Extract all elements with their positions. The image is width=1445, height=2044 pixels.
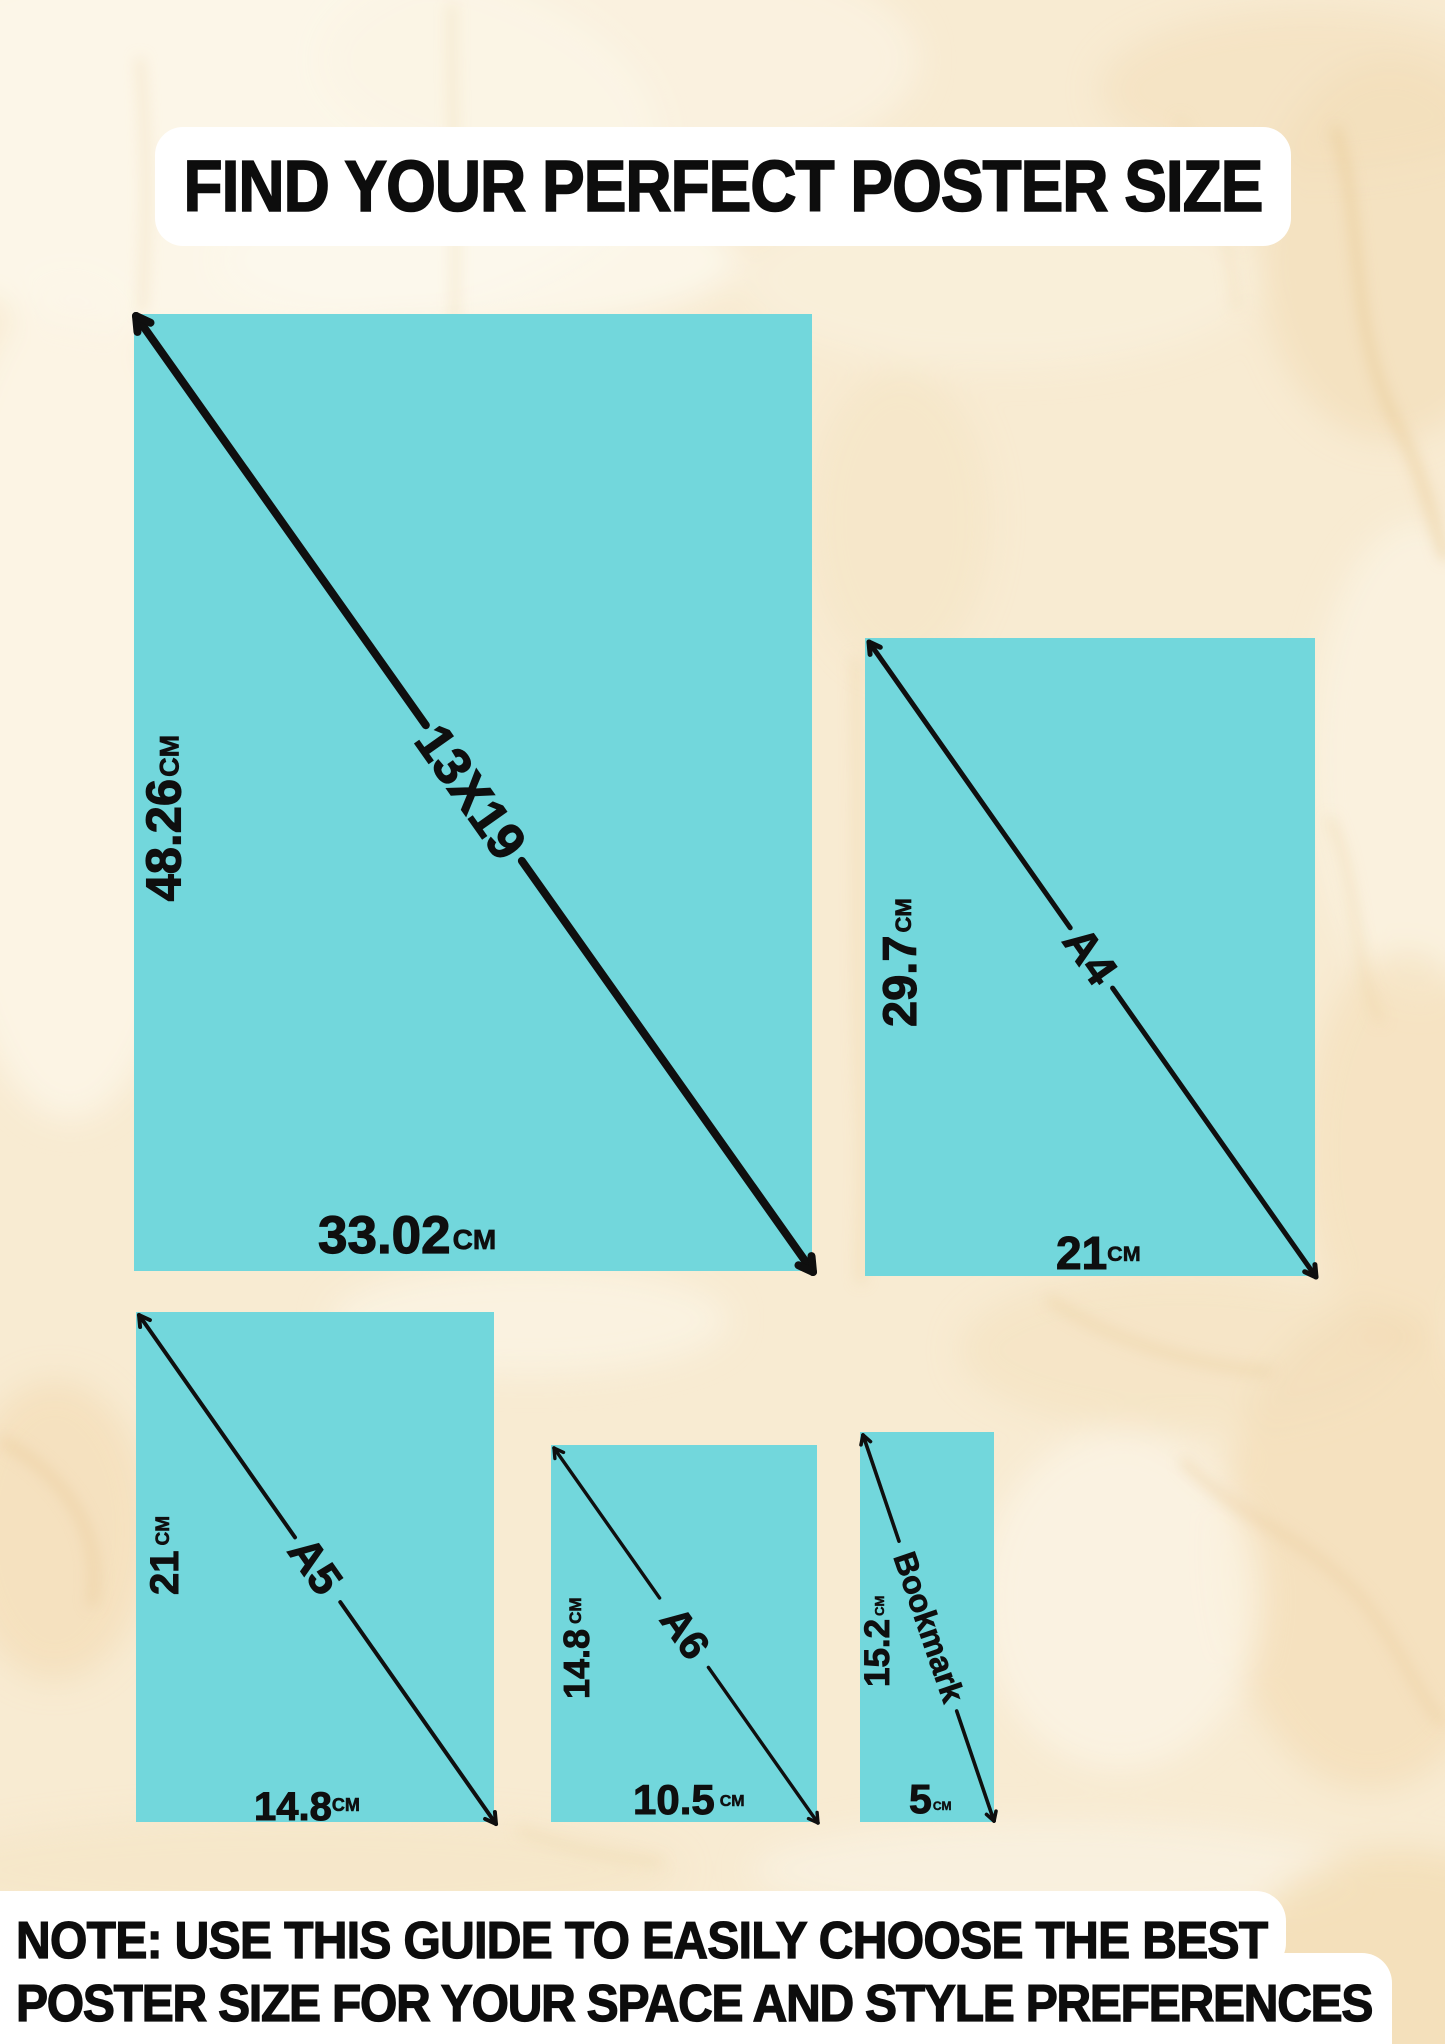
svg-text:POSTER SIZE FOR YOUR SPACE AND: POSTER SIZE FOR YOUR SPACE AND STYLE PRE… xyxy=(16,1974,1372,2032)
svg-text:NOTE: USE THIS GUIDE TO EASILY: NOTE: USE THIS GUIDE TO EASILY CHOOSE TH… xyxy=(16,1911,1268,1969)
svg-text:FIND YOUR PERFECT POSTER SIZE: FIND YOUR PERFECT POSTER SIZE xyxy=(184,146,1263,226)
